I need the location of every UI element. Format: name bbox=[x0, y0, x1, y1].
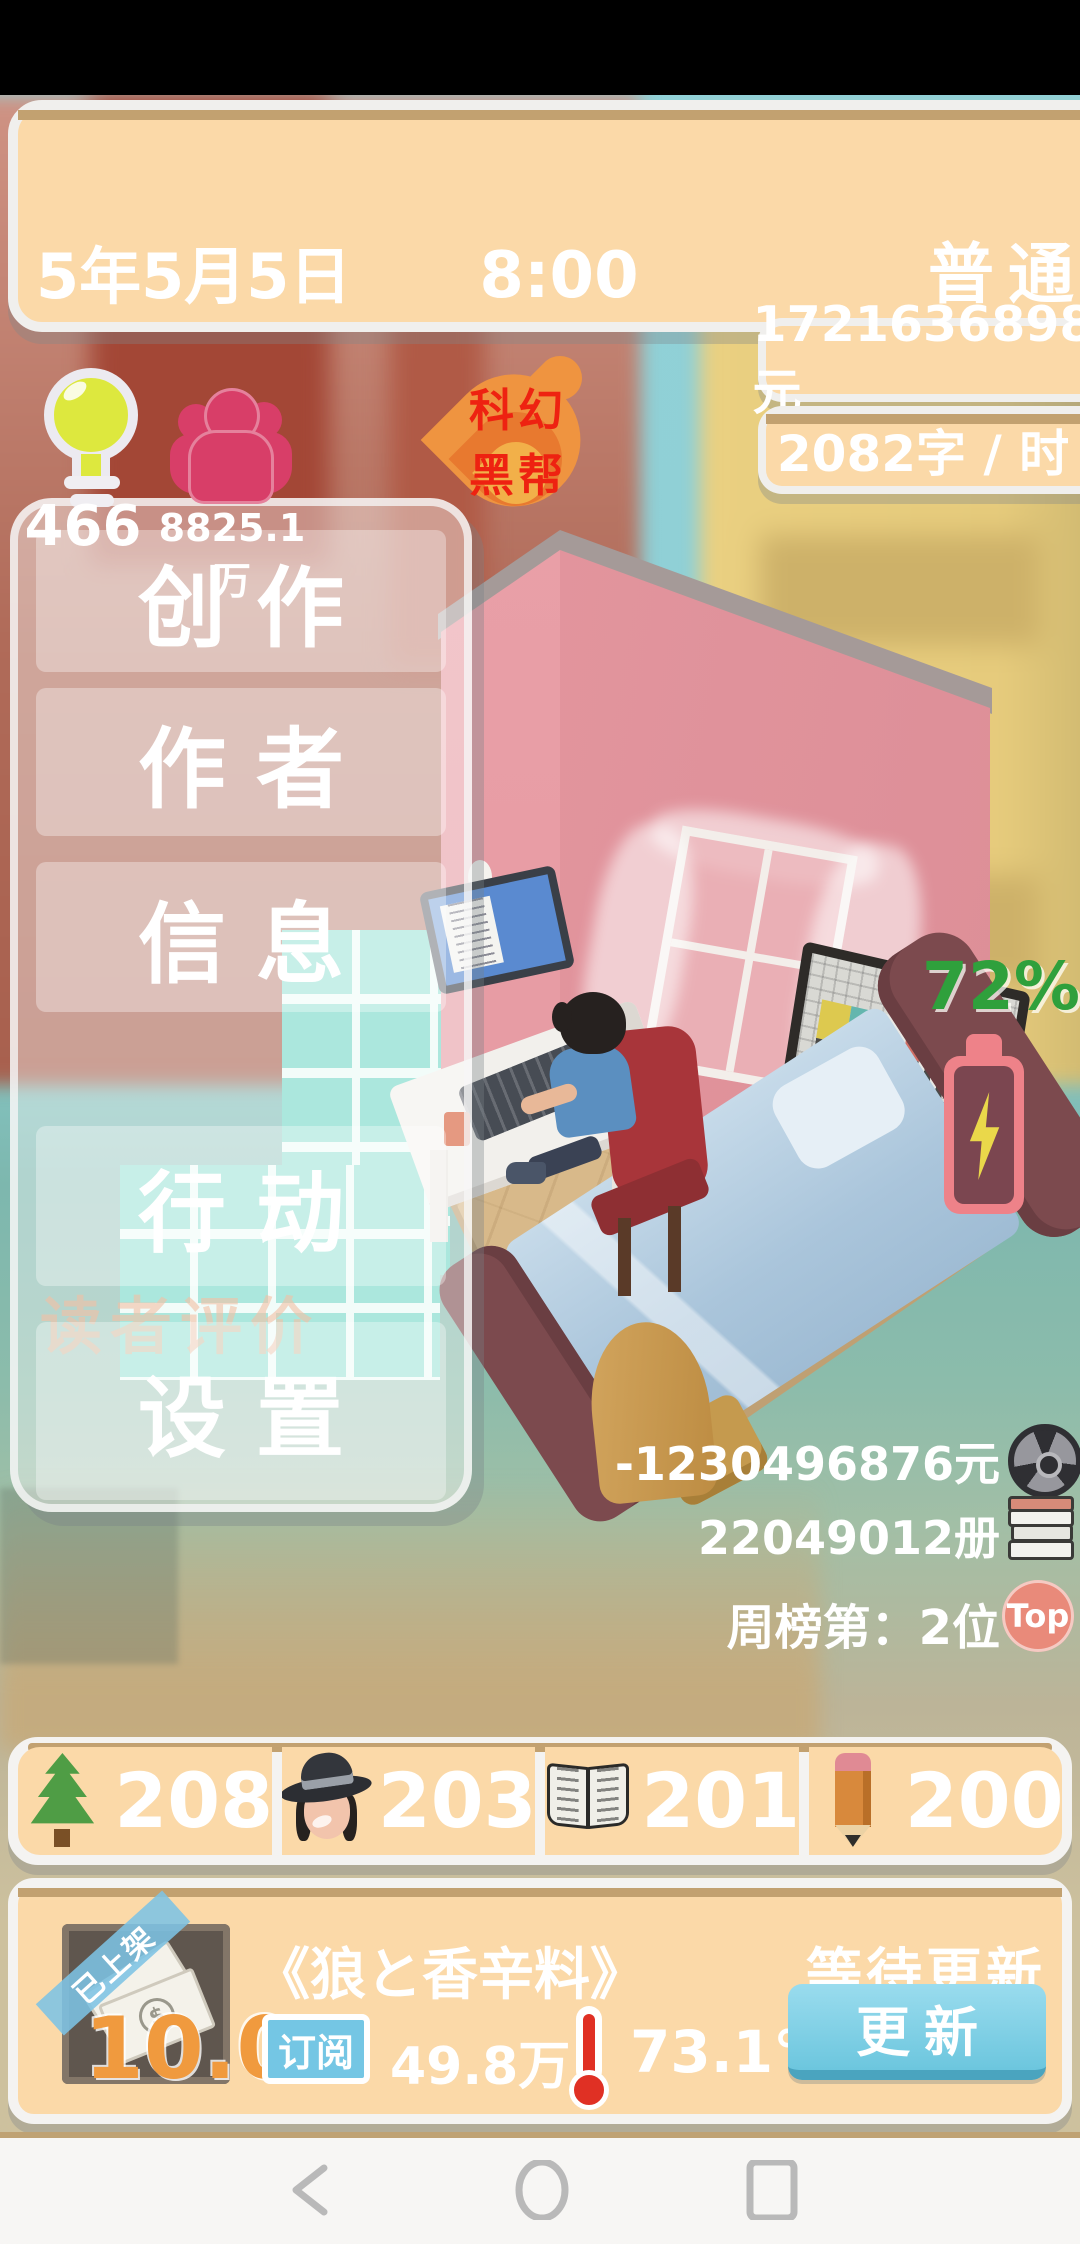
book-stack-icon bbox=[1008, 1496, 1074, 1564]
nav-home-icon[interactable] bbox=[512, 2160, 572, 2220]
writing-speed-panel: 2082字 / 时 bbox=[758, 406, 1080, 494]
android-status-bar bbox=[0, 0, 1080, 95]
resource-book[interactable]: 201 bbox=[545, 1747, 799, 1855]
menu-item-info[interactable]: 信息 bbox=[36, 862, 446, 1012]
rank-top-badge[interactable]: Top bbox=[1002, 1580, 1074, 1652]
writer-head bbox=[560, 992, 626, 1054]
resource-bar: 208 203 201 200 bbox=[8, 1737, 1072, 1865]
menu-item-author[interactable]: 作者 bbox=[36, 688, 446, 836]
money-value: 1721636898元 bbox=[753, 296, 1080, 424]
writer-shoe bbox=[506, 1162, 546, 1184]
book-title: 《狼と香辛料》 bbox=[254, 1930, 646, 2011]
resource-tree[interactable]: 208 bbox=[18, 1747, 272, 1855]
copies-sold: 22049012册 bbox=[698, 1502, 1000, 1568]
fans-icon bbox=[172, 386, 292, 498]
battery-icon bbox=[944, 1034, 1024, 1216]
heat-thermometer-icon bbox=[566, 2006, 612, 2110]
energy-percent: 72% bbox=[922, 948, 1080, 1025]
update-button[interactable]: 更新 bbox=[788, 1984, 1046, 2080]
hat-icon bbox=[282, 1753, 372, 1849]
adaptation-money: -1230496876元 bbox=[615, 1428, 1000, 1494]
film-reel-icon bbox=[1008, 1424, 1080, 1498]
open-book-icon bbox=[545, 1753, 635, 1849]
resource-hat[interactable]: 203 bbox=[282, 1747, 536, 1855]
heat-value: 73.1° bbox=[630, 2018, 802, 2086]
background-shadow-block bbox=[0, 1488, 178, 1664]
tree-icon bbox=[18, 1753, 108, 1849]
current-book-panel: $ 已上架 10.0 《狼と香辛料》 等待更新 订阅 49.8万 73.1° 更… bbox=[8, 1878, 1072, 2124]
pencil-icon bbox=[809, 1753, 899, 1849]
fans-count: 8825.1万 bbox=[142, 506, 322, 605]
game-date: 5年5月5日 bbox=[36, 246, 351, 308]
resource-pencil[interactable]: 200 bbox=[809, 1747, 1063, 1855]
game-screen: 读者评价 创作 作者 信息 行动 设置 5年5月5日 8:00 普通 17216… bbox=[0, 0, 1080, 2244]
subscriber-count: 49.8万 bbox=[390, 2024, 570, 2099]
inspiration-count: 466 bbox=[8, 494, 158, 559]
desk-chair-leg bbox=[618, 1218, 631, 1296]
menu-item-settings[interactable]: 设置 bbox=[36, 1322, 446, 1500]
money-panel: 1721636898元 bbox=[758, 318, 1080, 402]
subscribe-badge: 订阅 bbox=[262, 2014, 370, 2084]
hot-genre-label: 科幻 黑帮 bbox=[438, 378, 598, 509]
nav-recents-icon[interactable] bbox=[742, 2160, 802, 2220]
desk-chair-leg bbox=[668, 1206, 681, 1292]
writing-speed-value: 2082字 / 时 bbox=[777, 414, 1069, 486]
nav-back-icon[interactable] bbox=[282, 2160, 342, 2220]
lightbulb-icon bbox=[44, 368, 136, 500]
game-time: 8:00 bbox=[479, 244, 638, 308]
menu-item-action[interactable]: 行动 bbox=[36, 1126, 446, 1286]
week-rank: 周榜第：2位 bbox=[727, 1588, 1000, 1658]
